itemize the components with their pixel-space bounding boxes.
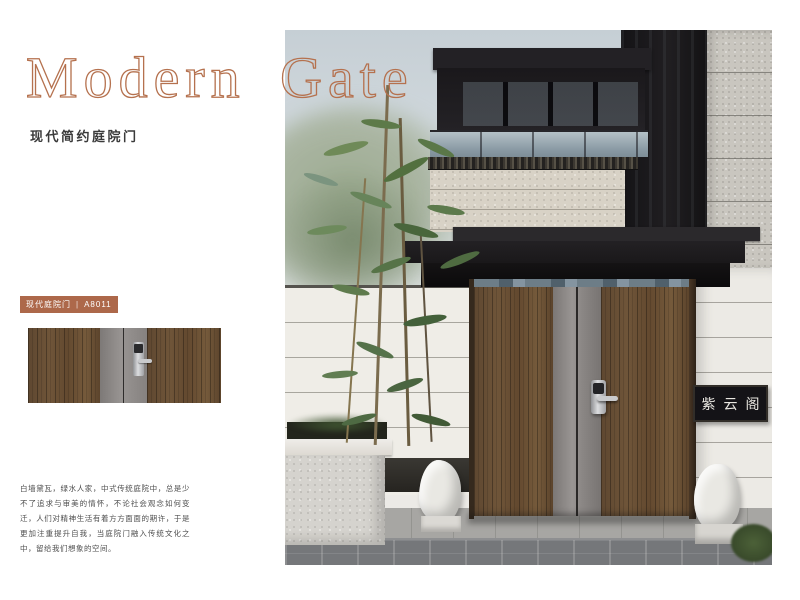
thumbnail-right-wood-leaf [147,328,221,403]
planter-body [285,455,385,545]
product-description: 白墙黛瓦，绿水人家，中式传统庭院中，总是少不了追求与审美的情怀，不论社会观念如何… [20,481,190,556]
gate-right-wood-leaf [601,287,689,516]
left-stone-pedestal [421,516,461,532]
signboard-text: 紫云阁 [702,394,768,414]
corner-shrub [731,524,772,562]
thumbnail-handle-icon [138,359,152,363]
thumbnail-left-wood-leaf [28,328,100,403]
balcony-windows [463,82,638,126]
gate-center-seam [576,287,578,516]
gate-handle-lever-icon [597,396,618,401]
gate-ground-shadow [468,513,698,524]
gate-lock-keypad [593,383,604,394]
product-category: 现代庭院门 [26,299,71,310]
page-title: Modern Gate [26,44,414,111]
canopy-top-slab [453,227,760,241]
product-badge: 现代庭院门 | A8011 [20,296,118,313]
product-thumbnail [28,328,221,403]
carved-frieze-band [428,157,638,170]
gate-left-wood-leaf [474,287,553,516]
left-stone-ornament [419,460,461,522]
catalog-page: { "page": { "title": "Modern Gate", "sub… [0,0,800,600]
signboard: 紫云阁 [693,385,768,422]
thumbnail-center-seam [123,328,124,403]
product-model: A8011 [84,300,112,309]
right-stone-ornament [694,464,740,530]
railing-mullions [430,132,648,157]
page-subtitle: 现代简约庭院门 [30,126,139,145]
balcony-roof [433,48,651,70]
badge-divider: | [76,300,79,309]
upper-stone-wall-joints [430,170,625,232]
